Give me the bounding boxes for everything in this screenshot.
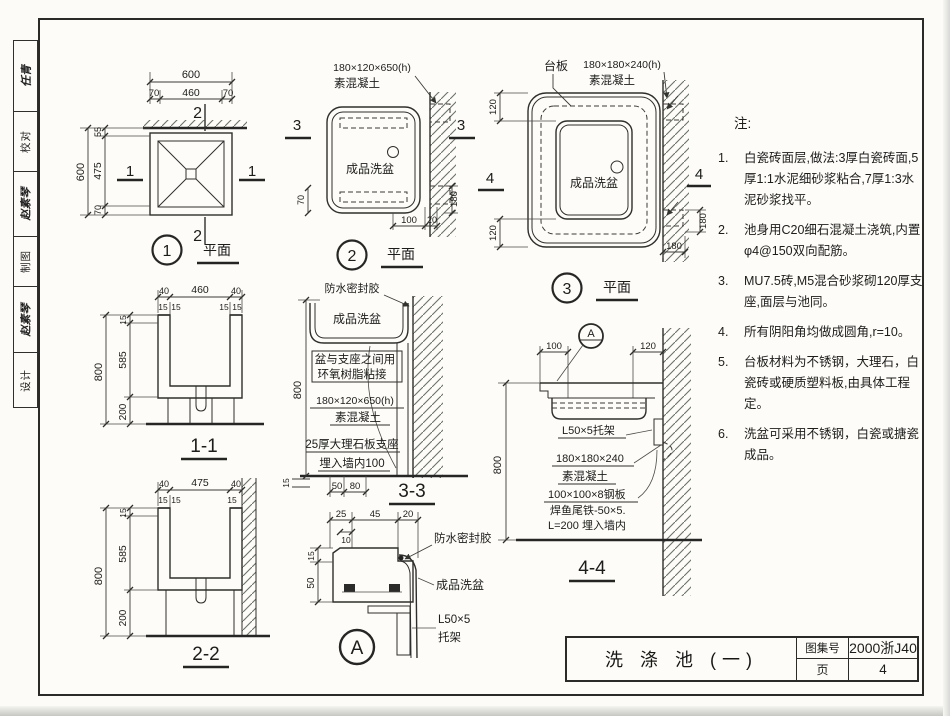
atlas-number-label: 图集号 <box>797 638 849 659</box>
plan1-drawing: 600 70 460 70 600 55 475 70 2 2 1 <box>55 52 280 287</box>
section-mark-2: 2 <box>193 228 202 245</box>
counter-label: 台板 <box>544 58 568 73</box>
dim-800: 800 <box>93 363 105 381</box>
concrete-size-note: 180×180×240(h) <box>583 59 661 71</box>
role-label: 设计 <box>18 369 33 392</box>
plan3-callout: 3 平面 <box>553 274 639 303</box>
dim-40: 40 <box>159 286 169 296</box>
dim-70: 70 <box>223 88 234 99</box>
dim-40: 40 <box>231 479 241 489</box>
dim-800: 800 <box>492 456 504 474</box>
title-block: 洗 涤 池 (一) 图集号 2000浙J40 页 4 <box>565 636 919 682</box>
dim-180: 180 <box>698 213 709 229</box>
sidebar-signature-cell: 任青 <box>13 40 38 112</box>
s22-dims-left: 800 15 585 200 <box>93 505 158 639</box>
embedded-steel <box>389 584 400 592</box>
note-item-5: 5. 台板材料为不锈钢，大理石，白瓷砖或硬质塑料板,由具体工程定。 <box>716 352 924 415</box>
support-note-line2: 埋入墙内100 <box>319 456 384 470</box>
s44-dims-top: 100 120 <box>537 341 666 398</box>
callout-number: 1 <box>163 243 172 260</box>
plan2-basin: 成品洗盆 <box>327 107 420 213</box>
note-item-1: 1. 白瓷砖面层,做法:3厚白瓷砖面,5厚1:1水泥细砂浆粘合,7厚1:3水泥砂… <box>716 148 924 211</box>
drawing-sheet: 任青 校对 赵素琴 制图 赵素琴 设计 600 70 <box>0 0 950 716</box>
s11-label: 1-1 <box>181 436 227 459</box>
bracket-note-line1: L50×5 <box>438 614 470 626</box>
dim-200: 200 <box>118 609 129 626</box>
detail-letter: A <box>351 638 364 659</box>
note-text: 池身用C20细石混凝土浇筑,内置φ4@150双向配筋。 <box>744 220 924 262</box>
note-number: 5. <box>716 352 744 415</box>
callout-title: 平面 <box>203 242 231 258</box>
dim-45: 45 <box>370 509 381 520</box>
notes-panel: 注: 1. 白瓷砖面层,做法:3厚白瓷砖面,5厚1:1水泥细砂浆粘合,7厚1:3… <box>716 112 924 475</box>
s33-label: 3-3 <box>389 481 435 504</box>
s44-counter-basin <box>540 383 663 419</box>
bracket-note: L50×5托架 <box>562 423 615 437</box>
dim-15: 15 <box>118 315 128 325</box>
dim-15: 15 <box>227 495 237 505</box>
dim-20: 20 <box>403 509 414 520</box>
s44-dims-left: 800 <box>492 380 540 543</box>
dim-70: 70 <box>296 195 306 205</box>
s22-wall <box>242 478 256 636</box>
section-mark-1: 1 <box>248 163 256 180</box>
dim-120: 120 <box>640 341 656 352</box>
sidebar-role-cell-draft: 制图 <box>13 236 38 288</box>
s44-wall <box>663 328 691 596</box>
sealant-label: 防水密封胶 <box>434 531 492 545</box>
bracket-note-line2: 托架 <box>438 630 461 644</box>
dim-15: 15 <box>118 508 128 518</box>
embedded-steel <box>344 584 355 592</box>
dim-50: 50 <box>306 577 317 589</box>
dim-40: 40 <box>231 286 241 296</box>
s44-detail-callout: A <box>557 324 603 381</box>
section-1-1-drawing: 40 460 40 15 15 15 15 800 15 585 200 <box>78 286 278 468</box>
concrete-material-note: 素混凝土 <box>562 469 608 483</box>
dim-15: 15 <box>281 478 291 488</box>
sheet-title: 洗 涤 池 (一) <box>567 638 797 680</box>
note-item-2: 2. 池身用C20细石混凝土浇筑,内置φ4@150双向配筋。 <box>716 220 924 262</box>
support-base <box>166 590 234 636</box>
s33-sealant-note: 防水密封胶 <box>325 281 410 306</box>
concrete-size-note: 180×180×240 <box>556 453 624 465</box>
note-text: MU7.5砖,M5混合砂浆砌120厚支座,面层与池同。 <box>744 271 924 313</box>
signature-text: 赵素琴 <box>18 304 34 337</box>
da-dims-top: 25 45 20 10 <box>327 509 421 558</box>
support-pier <box>212 398 234 424</box>
sealant-label: 防水密封胶 <box>325 281 380 295</box>
plan3-drawing: 台板 180×180×240(h) 素混凝土 成品洗盆 <box>478 52 713 307</box>
s33-basin: 成品洗盆 <box>310 303 408 343</box>
sidebar-role-cell-proofread: 校对 <box>13 111 38 173</box>
dim-120: 120 <box>488 225 499 241</box>
note-number: 1. <box>716 148 744 211</box>
signature-sidebar: 任青 校对 赵素琴 制图 赵素琴 设计 <box>13 42 38 408</box>
role-label: 校对 <box>18 130 33 153</box>
dim-10: 10 <box>341 535 351 545</box>
note-text: 台板材料为不锈钢，大理石，白瓷砖或硬质塑料板,由具体工程定。 <box>744 352 924 415</box>
dim-50: 50 <box>332 481 343 492</box>
basin-label: 成品洗盆 <box>436 578 484 592</box>
dim-200: 200 <box>118 403 129 420</box>
basin-label: 成品洗盆 <box>346 162 394 176</box>
page-number: 4 <box>849 659 917 680</box>
dim-15: 15 <box>232 302 242 312</box>
sidebar-signature-cell: 赵素琴 <box>13 171 38 237</box>
section-label-4-4: 4-4 <box>578 558 606 579</box>
sidebar-signature-cell: 赵素琴 <box>13 286 38 354</box>
section-label-3-3: 3-3 <box>398 481 425 502</box>
callout-number: 2 <box>348 248 357 265</box>
note-number: 3. <box>716 271 744 313</box>
plan1-dims-top: 600 70 460 70 <box>147 69 235 104</box>
dim-100: 100 <box>546 341 562 352</box>
dim-15: 15 <box>306 551 316 561</box>
dim-600: 600 <box>182 69 200 81</box>
page-label: 页 <box>797 659 849 680</box>
concrete-material-note: 素混凝土 <box>589 73 635 87</box>
dim-180: 180 <box>449 191 460 207</box>
section-mark-4: 4 <box>695 166 703 183</box>
detail-a-drawing: 25 45 20 10 防水密封胶 成品洗盆 L50×5 <box>298 505 498 703</box>
basin-label: 成品洗盆 <box>570 176 618 190</box>
notes-heading: 注: <box>734 112 924 132</box>
plan2-drawing: 180×120×650(h) 素混凝土 成品洗盆 3 3 70 <box>283 56 480 284</box>
plan3-counter: 成品洗盆 <box>528 93 660 247</box>
note-text: 洗盆可采用不锈钢，白瓷或搪瓷成品。 <box>744 424 924 466</box>
basin-label: 成品洗盆 <box>333 312 381 326</box>
note-number: 4. <box>716 322 744 343</box>
basin-outline <box>556 121 632 219</box>
signature-text: 赵素琴 <box>18 188 34 221</box>
section-mark-2: 2 <box>193 105 202 122</box>
scan-edge-right <box>943 0 950 716</box>
s22-label: 2-2 <box>183 644 229 667</box>
section-4-4-drawing: A 100 120 L50 <box>488 312 710 590</box>
da-dims-left: 15 50 <box>306 545 333 605</box>
detail-ref-letter: A <box>587 328 595 340</box>
dim-15: 15 <box>219 302 229 312</box>
sealant-bead <box>399 556 404 561</box>
dim-120: 120 <box>488 99 499 115</box>
note-item-4: 4. 所有阴阳角均做成圆角,r=10。 <box>716 322 924 343</box>
sidebar-role-cell-design: 设计 <box>13 352 38 408</box>
dim-475: 475 <box>92 162 104 180</box>
dim-15: 15 <box>158 302 168 312</box>
s33-wall <box>413 296 443 478</box>
dim-475: 475 <box>191 477 209 489</box>
signature-text: 任青 <box>18 65 34 87</box>
note-number: 2. <box>716 220 744 262</box>
section-3-3-drawing: 防水密封胶 成品洗盆 盆与支座之间用 环氧树脂粘接 180×120×650(h)… <box>288 283 488 508</box>
bond-note-line2: 环氧树脂粘接 <box>318 367 387 381</box>
drain-outlet <box>186 169 196 179</box>
plan3-wall <box>663 80 689 262</box>
bond-note-line1: 盆与支座之间用 <box>315 352 396 366</box>
section-mark-3: 3 <box>457 117 465 134</box>
concrete-size-note: 180×120×650(h) <box>316 395 394 407</box>
dim-70: 70 <box>149 88 160 99</box>
section-mark-4: 4 <box>486 170 494 187</box>
concrete-material-note: 素混凝土 <box>335 410 381 424</box>
dim-585: 585 <box>117 351 129 369</box>
plan3-dims-left: 120 120 <box>488 90 556 250</box>
s33-notes: 盆与支座之间用 环氧树脂粘接 180×120×650(h) 素混凝土 25厚大理… <box>305 351 404 471</box>
section-label-2-2: 2-2 <box>192 644 219 665</box>
dim-25: 25 <box>336 509 347 520</box>
note-item-6: 6. 洗盆可采用不锈钢，白瓷或搪瓷成品。 <box>716 424 924 466</box>
section-2-2-drawing: 40 475 40 15 15 15 800 15 585 <box>78 472 283 672</box>
dim-80: 80 <box>350 481 361 492</box>
concrete-material-note: 素混凝土 <box>334 76 380 90</box>
note-number: 6. <box>716 424 744 466</box>
s22-dims-top: 40 475 40 15 15 15 <box>155 477 245 509</box>
dim-55: 55 <box>93 127 103 137</box>
dim-800: 800 <box>292 381 304 399</box>
scan-edge-bottom <box>0 706 950 716</box>
callout-title: 平面 <box>387 246 415 262</box>
da-callout: A <box>340 630 374 664</box>
note-text: 白瓷砖面层,做法:3厚白瓷砖面,5厚1:1水泥细砂浆粘合,7厚1:3水泥砂浆找平… <box>744 148 924 211</box>
dim-600: 600 <box>75 163 87 181</box>
dim-100: 100 <box>401 215 417 226</box>
note-item-3: 3. MU7.5砖,M5混合砂浆砌120厚支座,面层与池同。 <box>716 271 924 313</box>
s11-vessel <box>146 315 264 424</box>
atlas-number-value: 2000浙J40 <box>849 638 917 659</box>
s44-label: 4-4 <box>569 558 615 581</box>
s11-dims-top: 40 460 40 15 15 15 15 <box>155 284 245 316</box>
section-mark-3: 3 <box>293 117 301 134</box>
dim-460: 460 <box>191 284 209 296</box>
callout-number: 3 <box>563 281 572 298</box>
dim-15: 15 <box>171 495 181 505</box>
section-mark-1: 1 <box>126 163 134 180</box>
plan1-dims-left: 600 55 475 70 <box>75 125 150 218</box>
drain-hole <box>611 161 623 173</box>
dim-40: 40 <box>159 479 169 489</box>
anchor-note-line1: 焊鱼尾铁-50×5. <box>550 503 626 517</box>
plan2-concrete-note: 180×120×650(h) 素混凝土 <box>333 62 436 103</box>
support-note-line1: 25厚大理石板支座 <box>305 437 398 451</box>
anchor-note-line2: L=200 埋入墙内 <box>548 518 626 532</box>
dim-585: 585 <box>117 545 129 563</box>
drain-hole <box>388 147 399 158</box>
plan2-callout: 2 平面 <box>338 241 424 270</box>
role-label: 制图 <box>18 250 33 273</box>
note-text: 所有阴阳角均做成圆角,r=10。 <box>744 322 924 343</box>
support-pier <box>168 398 190 424</box>
callout-title: 平面 <box>603 279 631 295</box>
dim-180: 180 <box>666 241 682 252</box>
s44-notes: L50×5托架 180×180×240 素混凝土 100×100×8钢板 焊鱼尾… <box>544 423 661 532</box>
dim-15: 15 <box>171 302 181 312</box>
plan1-sink-plan <box>150 133 232 215</box>
steel-plate-note: 100×100×8钢板 <box>548 487 626 501</box>
dim-20: 20 <box>427 215 437 225</box>
s11-dims-left: 800 15 585 200 <box>93 312 158 427</box>
dim-15: 15 <box>158 495 168 505</box>
dim-460: 460 <box>182 87 200 99</box>
dim-800: 800 <box>93 567 105 585</box>
dim-70: 70 <box>93 205 103 215</box>
concrete-size-note: 180×120×650(h) <box>333 62 411 74</box>
section-label-1-1: 1-1 <box>190 436 217 457</box>
